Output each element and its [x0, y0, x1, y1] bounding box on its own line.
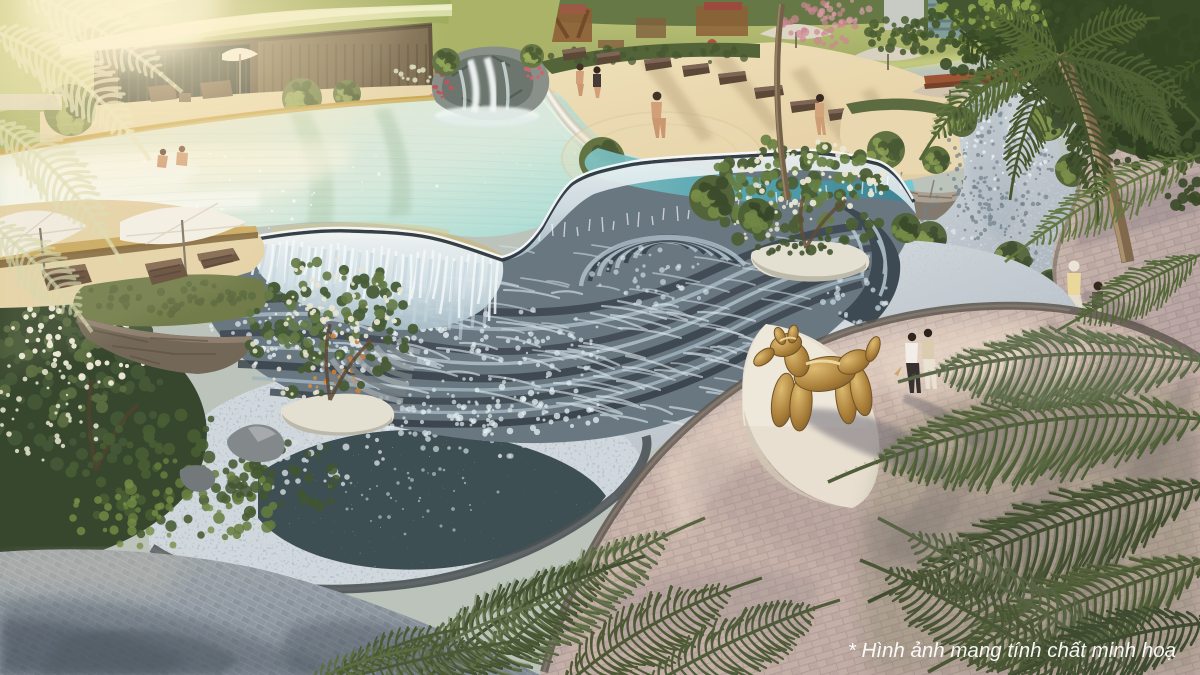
svg-text:* Hình ảnh mang tính chất minh: * Hình ảnh mang tính chất minh hoạ	[848, 639, 1176, 662]
